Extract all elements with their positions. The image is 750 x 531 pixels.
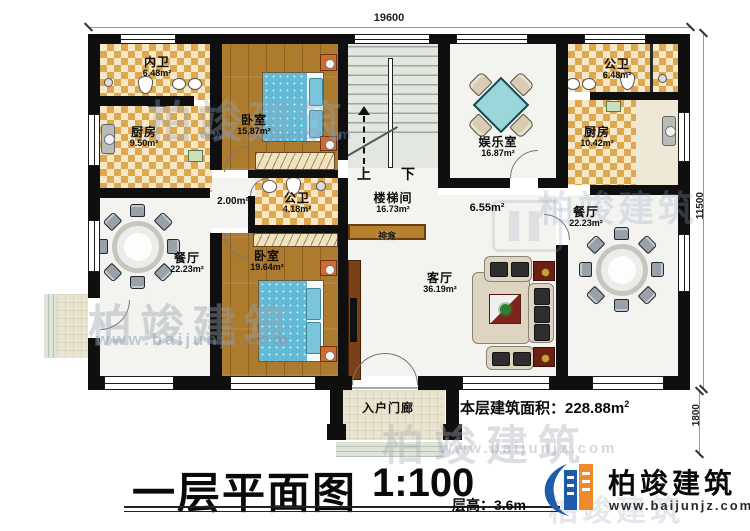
side-porch-steps — [44, 294, 57, 358]
brand-logo: 柏竣建筑 www.baijunjz.com — [540, 458, 745, 526]
room-area: 36.19m² — [402, 285, 478, 294]
entry-threshold — [352, 387, 418, 389]
sofa-seat-top — [484, 256, 532, 282]
sofa-cushion — [492, 352, 510, 366]
brand-logo-icon — [540, 460, 604, 522]
stair-arrow-head — [358, 106, 370, 115]
room-label-inner-bath: 内卫 6.48m² — [120, 56, 194, 78]
dimension-height-main: 11500 — [695, 192, 706, 219]
plant-icon — [500, 304, 511, 315]
floor-plan-canvas: 神龛 — [0, 0, 750, 531]
sofa-seat-bottom — [486, 346, 534, 370]
room-area: 10.42m² — [558, 139, 636, 148]
pillow-icon — [309, 110, 323, 138]
chair-icon — [579, 262, 592, 277]
floor-area-sup: 2 — [624, 399, 629, 409]
floor-area-summary: 本层建筑面积：228.88m2 — [460, 397, 629, 418]
room-label-public-bath-right: 公卫 6.48m² — [584, 58, 650, 80]
room-label-living: 客厅 36.19m² — [402, 272, 478, 294]
chair-icon — [130, 204, 145, 217]
stair-rail — [388, 58, 393, 168]
wall-segment — [248, 170, 338, 178]
window — [678, 112, 690, 162]
floor-height-label: 层高：3.6m — [452, 495, 526, 515]
wall-segment — [100, 96, 194, 106]
porch-wall-right — [446, 390, 459, 424]
window — [230, 376, 316, 390]
sofa-cushion — [534, 288, 550, 305]
room-area: 9.50m² — [106, 139, 182, 148]
wall-segment — [210, 44, 222, 170]
sofa-seat-right — [528, 283, 554, 343]
brand-site: www.baijunjz.com — [609, 498, 750, 513]
chair-icon — [651, 262, 664, 277]
side-door-opening — [88, 298, 100, 338]
nightstand-icon — [320, 260, 337, 276]
nightstand-icon — [320, 136, 337, 151]
side-porch-floor — [57, 294, 90, 358]
basin-icon — [665, 126, 676, 137]
room-label-center-bath: 公卫 4.18m² — [263, 192, 331, 214]
coffee-table-icon — [489, 294, 521, 324]
counter-icon — [606, 101, 621, 112]
wall-segment — [438, 178, 510, 188]
wall-segment — [556, 34, 568, 185]
room-label-kitchen-left: 厨房 9.50m² — [106, 126, 182, 148]
wall-segment — [338, 34, 348, 160]
entry-porch-label: 入户门廊 — [350, 399, 426, 416]
chair-icon — [614, 299, 629, 312]
wardrobe-bedroom-2 — [253, 233, 338, 247]
room-name: 厨房 — [558, 126, 636, 139]
room-name: 公卫 — [263, 192, 331, 205]
wall-segment — [88, 188, 210, 198]
wall-segment — [590, 92, 678, 100]
pillow-icon — [306, 322, 321, 354]
room-name: 娱乐室 — [458, 136, 538, 149]
dining-table-icon — [596, 244, 648, 296]
room-name: 公卫 — [584, 58, 650, 71]
pillow-icon — [306, 288, 321, 320]
chair-icon — [614, 227, 629, 240]
dimension-line-top — [88, 27, 690, 28]
room-area: 22.23m² — [150, 265, 224, 274]
shrine-label: 神龛 — [378, 231, 396, 241]
porch-pillar-left — [327, 424, 346, 440]
lamp-icon — [325, 265, 335, 275]
dimension-height-porch: 1800 — [691, 404, 702, 426]
room-name: 楼梯间 — [346, 192, 440, 205]
sofa-cushion — [534, 306, 550, 323]
room-name: 卧室 — [228, 250, 306, 263]
decor-icon — [541, 354, 550, 363]
shower-icon — [316, 181, 326, 191]
sink-icon — [172, 78, 186, 90]
pillow-icon — [309, 78, 323, 106]
bath-partition — [650, 44, 653, 92]
room-name: 餐厅 — [150, 252, 224, 265]
lamp-icon — [325, 59, 335, 69]
sink-icon — [566, 78, 580, 90]
room-area: 16.73m² — [346, 205, 440, 214]
wall-segment — [556, 245, 568, 376]
room-name: 餐厅 — [548, 206, 624, 219]
room-area: 22.23m² — [548, 219, 624, 228]
room-label-dining-left: 餐厅 22.23m² — [150, 252, 224, 274]
wall-segment — [590, 185, 678, 195]
wall-segment — [248, 225, 338, 233]
window — [678, 234, 690, 292]
sofa-cushion — [534, 324, 550, 341]
floor-area-label: 本层建筑面积： — [460, 400, 565, 417]
tv-icon — [350, 298, 357, 342]
stairs-up-label: 上 — [354, 164, 374, 184]
brand-name: 柏竣建筑 — [608, 462, 736, 502]
stairs-down-label: 下 — [398, 164, 418, 184]
window — [592, 376, 664, 390]
wall-segment — [678, 34, 690, 390]
hall-area-label: 6.55m² — [460, 202, 514, 214]
chair-icon — [130, 276, 145, 289]
room-name: 卧室 — [218, 114, 290, 127]
shower-icon — [104, 78, 113, 87]
room-label-kitchen-right: 厨房 10.42m² — [558, 126, 636, 148]
room-area: 15.87m² — [218, 127, 290, 136]
nightstand-icon — [320, 54, 337, 71]
window — [88, 220, 100, 272]
porch-wall-left — [330, 390, 343, 424]
nightstand-icon — [320, 346, 337, 362]
room-area: 16.87m² — [458, 149, 538, 158]
room-label-dining-right: 餐厅 22.23m² — [548, 206, 624, 228]
lamp-icon — [325, 140, 335, 150]
room-area: 6.48m² — [120, 69, 194, 78]
room-area: 6.48m² — [584, 71, 650, 80]
dimension-width-top: 19600 — [88, 12, 690, 24]
stair-treads — [348, 46, 438, 134]
bed-quilt — [259, 281, 307, 361]
shrine-cabinet: 神龛 — [348, 224, 426, 240]
window — [456, 34, 528, 44]
side-table-icon — [533, 347, 555, 367]
room-area: 19.64m² — [228, 263, 306, 272]
side-table-icon — [533, 261, 555, 281]
room-name: 内卫 — [120, 56, 194, 69]
wardrobe-bedroom-1 — [255, 152, 335, 170]
porch-pillar-right — [443, 424, 462, 440]
stair-direction-arrow — [363, 116, 367, 164]
window — [584, 34, 646, 44]
watermark-url: www.baijunjz.com — [440, 440, 617, 457]
window — [354, 34, 430, 44]
wall-segment — [438, 34, 450, 178]
window — [120, 34, 176, 44]
sofa-cushion — [511, 262, 529, 277]
window — [88, 114, 100, 166]
room-label-bedroom-1: 卧室 15.87m² — [218, 114, 290, 136]
window — [462, 376, 550, 390]
room-area: 4.18m² — [263, 205, 331, 214]
room-label-entertainment: 娱乐室 16.87m² — [458, 136, 538, 158]
floor-area-value: 228.88m — [565, 400, 624, 417]
room-floor-kitchen-left — [100, 106, 212, 192]
hall-area-label: 2.00m² — [210, 196, 256, 207]
room-label-bedroom-2: 卧室 19.64m² — [228, 250, 306, 272]
room-label-stairwell: 楼梯间 16.73m² — [346, 192, 440, 214]
sink-icon — [188, 78, 202, 90]
lamp-icon — [325, 351, 335, 361]
shower-icon — [658, 74, 667, 83]
room-name: 客厅 — [402, 272, 478, 285]
sofa-cushion — [490, 262, 508, 277]
counter-icon — [188, 150, 203, 162]
decor-icon — [541, 268, 550, 277]
window — [104, 376, 174, 390]
sofa-cushion — [513, 352, 531, 366]
room-name: 厨房 — [106, 126, 182, 139]
entry-porch-steps — [336, 442, 444, 457]
kitchen-sink-icon — [662, 116, 676, 146]
